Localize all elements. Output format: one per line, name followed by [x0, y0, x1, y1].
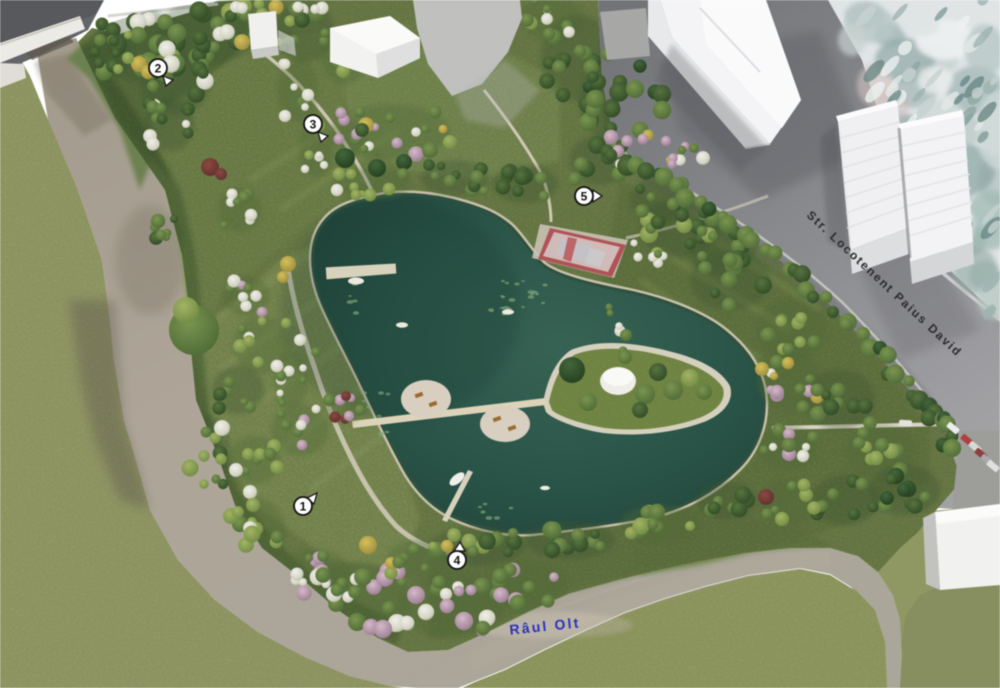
svg-text:4: 4 — [454, 554, 461, 568]
svg-text:1: 1 — [300, 500, 307, 514]
svg-text:5: 5 — [581, 190, 588, 204]
svg-text:2: 2 — [155, 62, 162, 76]
svg-text:3: 3 — [310, 118, 317, 132]
